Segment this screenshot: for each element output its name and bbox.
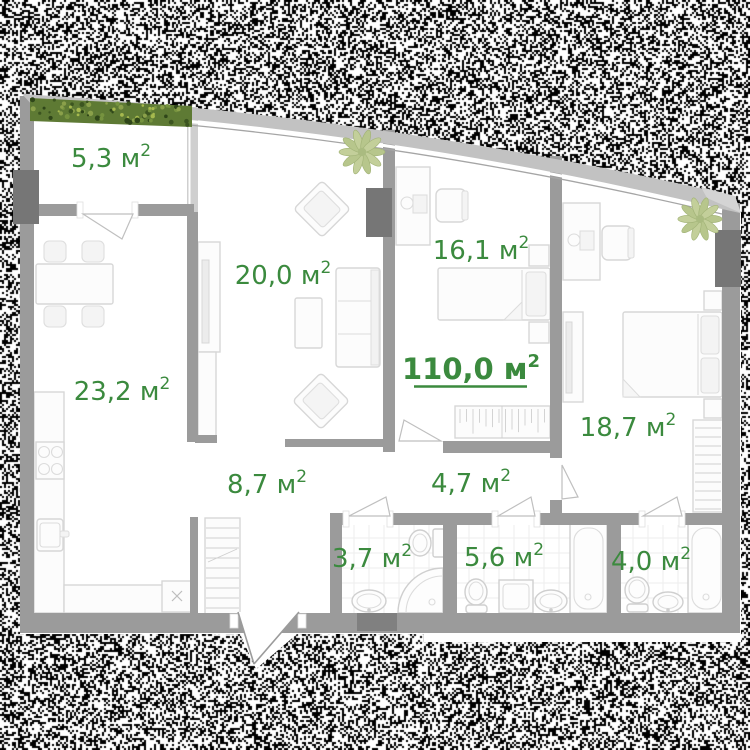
tv-console-icon [563,312,583,402]
wardrobe-icon [693,420,723,512]
toilet-icon [409,529,445,557]
area-label-balcony: 5,3 м2 [71,141,151,174]
chair-icon [82,241,104,262]
sofa-icon [336,268,380,367]
area-label-bedroom1: 16,1 м2 [433,233,530,266]
bottom-ledge [428,633,736,641]
nightstand-icon [529,245,549,266]
area-label-corridor: 4,7 м2 [431,466,511,499]
window-icon [13,170,39,224]
bed-icon [438,268,550,320]
hallway-furniture [205,518,240,622]
sink-icon [352,590,386,612]
area-label-bathroom1: 3,7 м2 [332,541,412,574]
floor-plan-svg: 5,3 м2 20,0 м2 16,1 м2 110,0 м2 23,2 м2 … [0,0,750,750]
stove-icon [36,442,64,479]
sink-icon [535,590,567,612]
floor-plan-page: 5,3 м2 20,0 м2 16,1 м2 110,0 м2 23,2 м2 … [0,0,750,750]
dining-table-icon [36,264,113,304]
tv-console-icon [198,242,220,440]
area-label-bathroom3: 4,0 м2 [611,544,691,577]
toilet-icon [625,577,649,612]
bathtub-icon [688,523,725,613]
window-icon [715,230,741,287]
office-chair-icon [436,189,468,222]
toilet-icon [465,579,487,613]
coffee-table-icon [295,298,322,348]
kitchen-counter [34,392,64,613]
shaft-icon [357,613,397,631]
nightstand-icon [704,399,722,418]
washer-icon [162,581,192,612]
chair-icon [44,306,66,327]
chair-icon [44,241,66,262]
bathtub-icon [570,523,607,613]
bed-icon [623,312,722,397]
desk-icon [563,203,600,280]
shower-cabin-icon [499,580,533,613]
area-label-living: 20,0 м2 [235,258,332,291]
desk-icon [396,167,430,245]
area-label-bedroom2: 18,7 м2 [580,410,677,443]
sink-icon [653,592,683,612]
area-label-bathroom2: 5,6 м2 [464,540,544,573]
nightstand-icon [529,322,549,343]
wardrobe-icon [205,518,240,622]
shaft-icon [366,188,392,237]
chair-icon [82,306,104,327]
area-label-total: 110,0 м2 [402,351,540,386]
area-label-kitchen-living: 23,2 м2 [74,374,171,407]
nightstand-icon [704,291,722,310]
wardrobe-icon [455,406,550,438]
area-label-hallway: 8,7 м2 [227,467,307,500]
office-chair-icon [602,226,634,260]
